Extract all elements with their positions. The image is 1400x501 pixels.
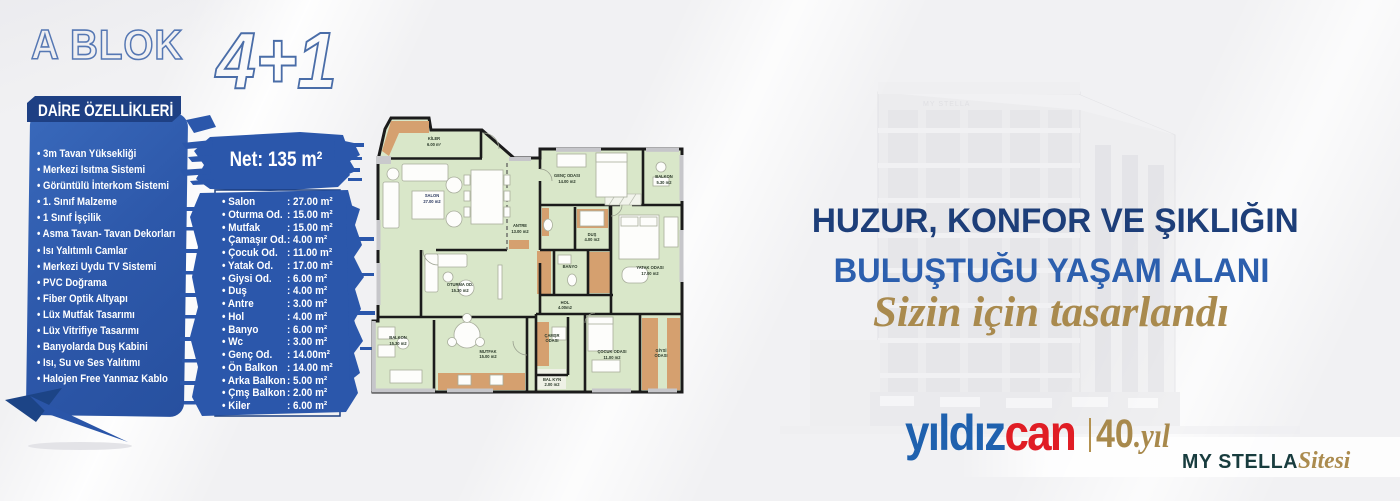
svg-text:15.30 m2: 15.30 m2 (451, 288, 469, 293)
svg-text:ANTRE: ANTRE (513, 223, 527, 228)
svg-text:ODASI: ODASI (655, 353, 668, 358)
svg-text:2.00 m2: 2.00 m2 (544, 382, 560, 387)
svg-text:SALON: SALON (425, 193, 439, 198)
svg-text:MY STELLA: MY STELLA (923, 101, 970, 108)
svg-text:6.00 m²: 6.00 m² (427, 142, 442, 147)
svg-text:BALKON: BALKON (389, 335, 407, 340)
svg-text:15.30 m2: 15.30 m2 (389, 341, 407, 346)
svg-text:ODASI: ODASI (546, 338, 559, 343)
svg-text:5.30 m2: 5.30 m2 (656, 180, 672, 185)
svg-text:14.00 m2: 14.00 m2 (558, 179, 576, 184)
svg-text:BANYO: BANYO (563, 264, 579, 269)
svg-text:11.00 m2: 11.00 m2 (603, 355, 621, 360)
svg-text:ÇOCUK ODASI: ÇOCUK ODASI (597, 349, 626, 354)
svg-text:4.00m2: 4.00m2 (558, 305, 573, 310)
svg-text:17.00 m2: 17.00 m2 (641, 271, 659, 276)
svg-text:BALKON: BALKON (655, 174, 673, 179)
svg-text:GENÇ ODASI: GENÇ ODASI (554, 173, 580, 178)
svg-text:13.00 m2: 13.00 m2 (511, 229, 529, 234)
svg-text:KİLER: KİLER (428, 136, 440, 141)
svg-text:OTURMA OD.: OTURMA OD. (447, 282, 473, 287)
svg-text:YATAK ODASI: YATAK ODASI (636, 265, 663, 270)
svg-text:27.00 m2: 27.00 m2 (423, 199, 441, 204)
svg-text:15.00 m2: 15.00 m2 (479, 354, 497, 359)
svg-text:4.00 m2: 4.00 m2 (584, 237, 600, 242)
